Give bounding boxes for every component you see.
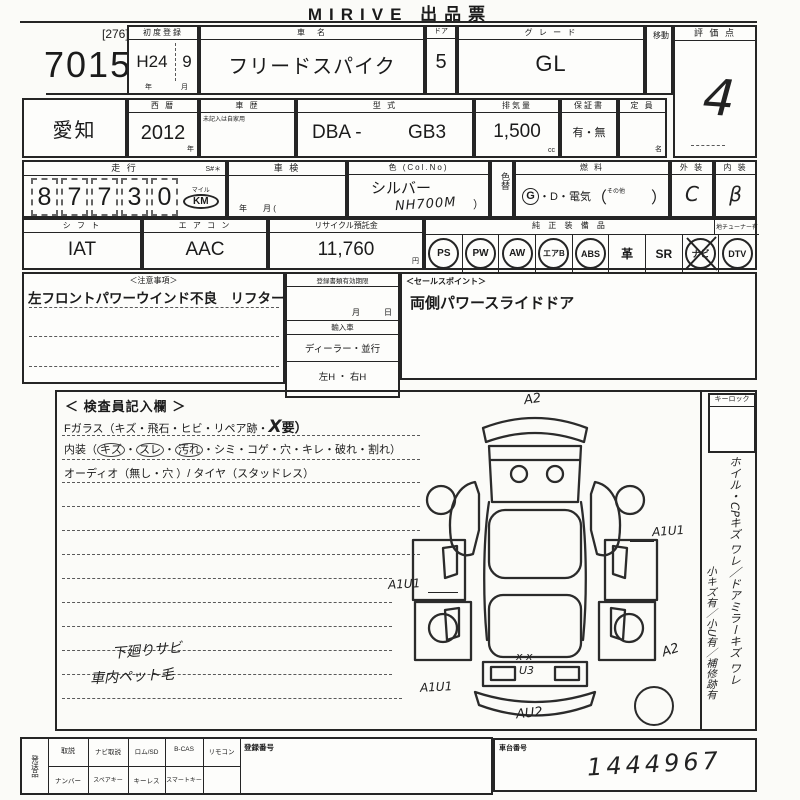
mileage-digit: 7: [91, 178, 118, 216]
score-value: 4: [701, 68, 737, 128]
prefecture: 愛知: [24, 100, 125, 156]
accessory-bcas: B-CAS: [165, 746, 203, 753]
inspection-expiry-box: 車 検 年 月 (: [227, 160, 347, 218]
first-registration-box: 初度登録 H24 9 年 月: [127, 25, 199, 95]
exterior-grade-box: 外 装 C: [670, 160, 714, 218]
recycle-fee-box: リサイクル預託金 11,760 円: [268, 218, 424, 270]
mileage-unit-badge: KM: [183, 194, 219, 209]
caution-box: ＜注意事項＞ 左フロントパワーウインド不良 リフター?: [22, 272, 285, 384]
color-paren: ）: [473, 196, 484, 212]
equipment-cell-airbag: エアB: [535, 235, 572, 272]
accessory-smart-key: スマートキー: [165, 775, 203, 784]
warranty-label: 保証書: [562, 100, 616, 113]
first-registration-label: 初度登録: [129, 27, 197, 40]
fuel-other-label: その他: [607, 186, 625, 195]
history-label: 車 歴: [201, 100, 294, 113]
equipment-cell-aw: AW: [498, 235, 535, 272]
mileage-digit: 3: [121, 178, 148, 216]
import-type: ディーラー・並行: [287, 335, 398, 362]
displacement-label: 排気量: [476, 100, 558, 113]
mileage-label: 走 行: [24, 162, 225, 176]
inspector-rule: [62, 482, 420, 483]
mileage-box: 走 行 S#＊ 8 7 7 3 0 マイル KM: [22, 160, 227, 218]
equipment-abs: ABS: [575, 238, 606, 269]
model-label: 型 式: [298, 100, 472, 113]
tuner-label: 地チューナー有: [715, 220, 759, 235]
car-name-label: 車 名: [201, 27, 423, 40]
damage-mark: A1U1: [420, 679, 453, 695]
chassis-number-label: 車台番号: [499, 743, 527, 753]
inspector-rule: [62, 578, 392, 579]
color-change-box: 色替: [490, 160, 514, 218]
damage-pointer: [630, 541, 654, 542]
model-code: GB3: [408, 122, 446, 144]
month-char: 月: [181, 82, 188, 92]
damage-mark: A1U1: [388, 576, 421, 592]
caution-rule: [29, 366, 279, 367]
interior-prefix: 内装（: [64, 444, 97, 456]
displacement-value: 1,500: [476, 113, 558, 151]
registration-number-label: 登録番号: [244, 742, 274, 753]
documents-date: 月 日: [352, 307, 392, 318]
caution-rule: [29, 336, 279, 337]
warranty-box: 保証書 有・無: [560, 98, 618, 158]
color-value: シルバー: [371, 177, 431, 198]
keylock-box: キーロック: [708, 393, 756, 453]
equipment-pw: PW: [465, 238, 496, 269]
model-box: 型 式 DBA - GB3: [296, 98, 474, 158]
displacement-unit: cc: [548, 147, 555, 154]
car-damage-diagram: [405, 390, 710, 725]
accessories-grid: 発送品 取説 ナビ取説 ロム/SD B-CAS リモコン ナンバー スペアキー …: [20, 737, 493, 795]
exterior-label: 外 装: [672, 162, 712, 175]
move-label: 移動: [653, 30, 669, 41]
auction-sheet: MIRIVE 出品票 [276] 70153 初度登録 H24 9 年 月 車 …: [0, 0, 800, 800]
model-prefix: DBA -: [312, 122, 362, 144]
interior-label: 内 装: [716, 162, 755, 175]
inspection-date-line: 年 月 (: [239, 203, 276, 214]
car-name-box: 車 名 フリードスパイク: [199, 25, 425, 95]
fuel-box: 燃 料 G ・D・電気 （ その他 ）: [514, 160, 670, 218]
chassis-number-box: 車台番号 1444967: [493, 738, 757, 792]
inspector-rule: [62, 602, 392, 603]
inspector-rule: [62, 554, 420, 555]
fuel-paren-close: ）: [651, 184, 667, 208]
western-year-box: 西 暦 2012 年: [127, 98, 199, 158]
capacity-box: 定 員 名: [618, 98, 667, 158]
history-box: 車 歴 未記入は自家用: [199, 98, 296, 158]
handle-type: 左H ・ 右H: [287, 362, 398, 390]
corner-code: [276]: [102, 27, 129, 41]
equipment-label: 純 正 装 備 品: [426, 220, 715, 235]
equipment-cell-navi: ナビ: [682, 235, 719, 272]
caution-label: ＜注意事項＞: [24, 274, 283, 286]
first-registration-era: H24: [132, 45, 172, 79]
damage-mark: AU2: [515, 705, 543, 723]
equipment-aw: AW: [502, 238, 533, 269]
shipping-items-label: 発送品: [30, 755, 41, 778]
color-change-label: 色替: [499, 172, 512, 190]
accessory-remote: リモコン: [203, 746, 240, 756]
interior-sep: ・: [125, 444, 136, 456]
capacity-label: 定 員: [620, 100, 665, 113]
damage-pointer: [428, 592, 458, 593]
aircon-box: エ ア コ ン AAC: [142, 218, 268, 270]
equipment-dtv: DTV: [722, 238, 753, 269]
recycle-unit: 円: [412, 256, 419, 266]
year-char: 年: [145, 82, 152, 92]
equipment-leather: 革: [612, 238, 643, 269]
car-name: フリードスパイク: [201, 40, 423, 88]
keylock-label: キーロック: [710, 395, 754, 407]
first-registration-month: 9: [177, 45, 197, 79]
color-box: 色 (Col.No) シルバー NH700M ）: [347, 160, 490, 218]
sales-point-text: 両側パワースライドドア: [410, 292, 574, 313]
interior-grade-box: 内 装 β: [714, 160, 757, 218]
door-label: ドア: [427, 27, 455, 39]
equipment-cell-leather: 革: [608, 235, 645, 272]
fuel-options: ・D・電気: [539, 188, 591, 204]
grade-value: GL: [459, 40, 643, 88]
title-rule: [20, 21, 757, 23]
inspector-circle-mark: [634, 686, 674, 726]
score-label: 評 価 点: [675, 27, 755, 41]
equipment-cell-dtv: DTV: [718, 235, 755, 272]
equipment-cell-sr: SR: [645, 235, 682, 272]
inspector-rule: [62, 698, 402, 699]
serial-label: S#＊: [205, 164, 221, 174]
equipment-cell-ps: PS: [426, 235, 462, 272]
caution-rule: [29, 307, 279, 308]
shift-label: シ フ ト: [24, 220, 140, 233]
move-box: 移動: [645, 25, 673, 95]
accessory-rom-sd: ロム/SD: [128, 746, 165, 756]
era-month-divider: [175, 43, 176, 81]
sales-point-label: ＜セールスポイント＞: [406, 276, 486, 287]
color-label: 色 (Col.No): [349, 162, 488, 175]
glass-prefix: Fガラス（キズ・飛石・ヒビ・リペア跡・: [64, 423, 269, 435]
grade-label: グ レ ー ド: [459, 27, 643, 40]
glass-suffix: 要）: [282, 420, 308, 435]
caution-text: 左フロントパワーウインド不良 リフター?: [28, 287, 293, 307]
equipment-ps: PS: [428, 238, 459, 269]
accessory-number-plate: ナンバー: [48, 775, 88, 785]
door-count: 5: [427, 39, 455, 87]
shift-value: IAT: [24, 233, 140, 267]
inspector-panel-title: ＜ 検査員記入欄 ＞: [65, 396, 186, 415]
fuel-gasoline-circled: G: [522, 188, 539, 205]
navi-cross-mark: [683, 235, 720, 272]
grade-box: グ レ ー ド GL: [457, 25, 645, 95]
interior-grade: β: [716, 175, 755, 213]
interior-rest: ・シミ・コゲ・穴・キレ・破れ・割れ）: [203, 444, 401, 456]
inspector-rule: [62, 459, 420, 460]
fuel-label: 燃 料: [516, 162, 668, 175]
equipment-airbag: エアB: [538, 238, 569, 269]
grid-line: [48, 766, 240, 767]
inspector-rule: [62, 626, 392, 627]
glass-line: Fガラス（キズ・飛石・ヒビ・リペア跡・X要）: [64, 417, 308, 437]
damage-mark: U3: [519, 664, 534, 677]
import-label: 輸入車: [287, 321, 398, 335]
history-note: 未記入は自家用: [203, 114, 245, 123]
equipment-sr: SR: [648, 238, 679, 269]
damage-mark: x x: [516, 650, 533, 663]
equipment-cell-abs: ABS: [572, 235, 609, 272]
prefecture-box: 愛知: [22, 98, 127, 158]
exterior-grade: C: [672, 175, 712, 213]
damage-mark: A2: [523, 391, 542, 408]
color-code: NH700M: [395, 195, 457, 214]
interior-sep: ・: [164, 444, 175, 456]
interior-circled-sure: スレ: [136, 443, 164, 457]
interior-line: 内装（キズ・スレ・汚れ・シミ・コゲ・穴・キレ・破れ・割れ）: [64, 441, 401, 457]
aircon-value: AAC: [144, 233, 266, 267]
western-year-label: 西 暦: [129, 100, 197, 113]
chassis-number-value: 1444967: [586, 746, 722, 781]
equipment-box: 純 正 装 備 品 地チューナー有 PS PW AW エアB ABS 革 SR …: [424, 218, 757, 270]
warranty-value: 有・無: [562, 113, 616, 151]
score-box: 評 価 点 4: [673, 25, 757, 158]
accessory-manual: 取説: [48, 746, 88, 756]
accessory-spare-key: スペアキー: [88, 775, 128, 784]
recycle-label: リサイクル預託金: [270, 220, 422, 233]
glass-x-mark: X: [269, 417, 282, 437]
year-suffix: 年: [187, 144, 194, 154]
documents-label: 登録書類有効期限: [287, 274, 398, 287]
grid-line: [240, 739, 241, 793]
interior-circled-yogore: 汚れ: [175, 443, 203, 457]
mileage-digit: 7: [61, 178, 88, 216]
damage-mark: A1U1: [652, 523, 685, 539]
inspector-rule: [62, 435, 420, 436]
equipment-cell-pw: PW: [462, 235, 499, 272]
documents-column: 登録書類有効期限 月 日 輸入車 ディーラー・並行 左H ・ 右H: [285, 272, 400, 398]
accessory-keyless: キーレス: [128, 775, 165, 785]
capacity-unit: 名: [655, 144, 662, 154]
aircon-label: エ ア コ ン: [144, 220, 266, 233]
displacement-box: 排気量 1,500 cc: [474, 98, 560, 158]
interior-circled-kizu: キズ: [97, 443, 125, 457]
mileage-unit-top: マイル: [192, 185, 210, 194]
audio-tire-line: オーディオ（無し・穴 ）/ タイヤ（スタッドレス）: [64, 465, 314, 481]
sales-point-box: ＜セールスポイント＞ 両側パワースライドドア: [400, 272, 757, 380]
inspector-rule: [62, 530, 420, 531]
mileage-digit: 0: [151, 178, 178, 216]
recycle-value: 11,760: [270, 233, 422, 267]
score-scribble: [691, 145, 725, 146]
inspection-label: 車 検: [229, 162, 345, 176]
fuel-paren-open: （: [591, 184, 607, 208]
accessory-navi-manual: ナビ取説: [88, 746, 128, 756]
side-note-wheel: ホイル・CPキズ ワレ／ドアミラーキズ ワレ: [727, 456, 743, 736]
door-box: ドア 5: [425, 25, 457, 95]
mileage-digit: 8: [31, 178, 58, 216]
inspector-rule: [62, 506, 420, 507]
shift-box: シ フ ト IAT: [22, 218, 142, 270]
